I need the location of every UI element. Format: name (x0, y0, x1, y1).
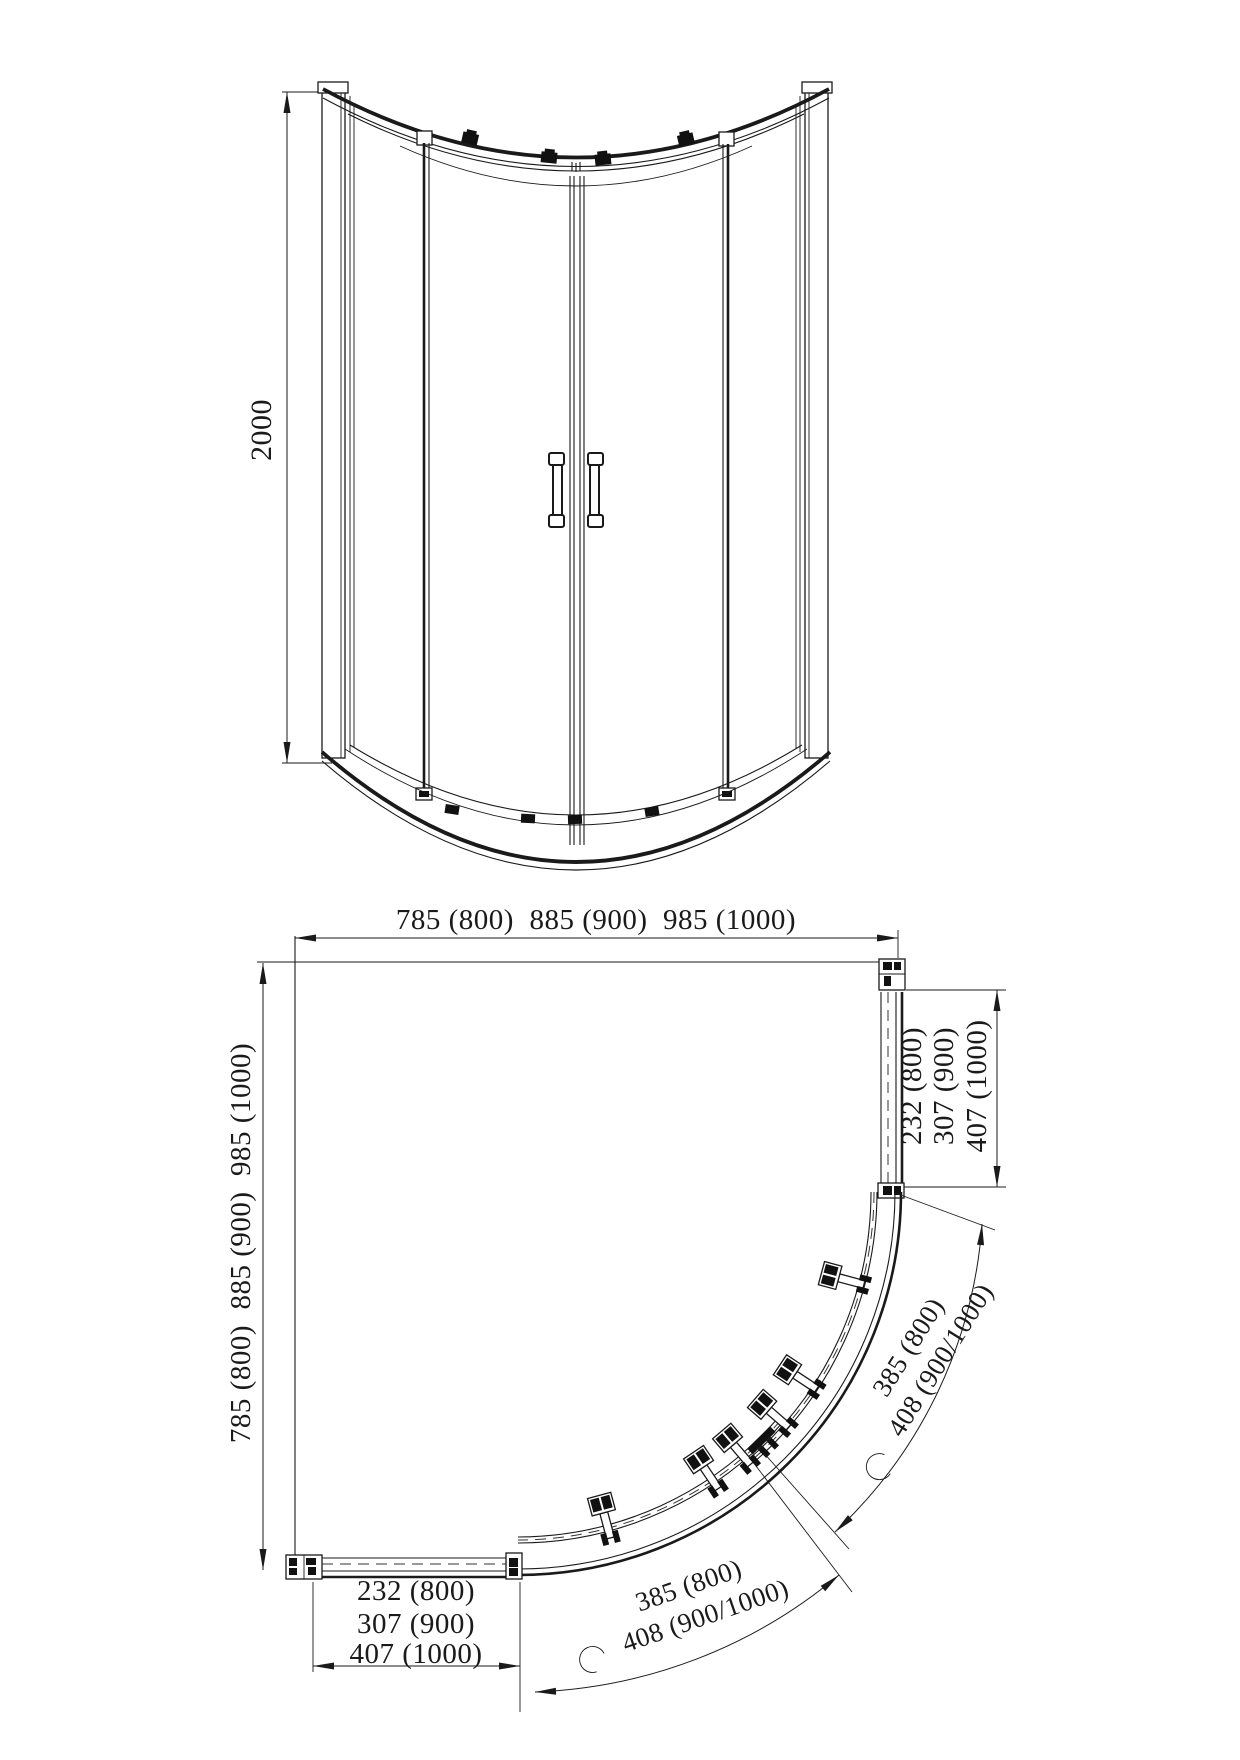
panel-dividers (416, 131, 735, 800)
svg-text:307 (900): 307 (900) (357, 1608, 475, 1640)
right-wall-post (805, 90, 828, 758)
arc-length-symbol (861, 1449, 897, 1485)
curved-track-and-doors (518, 1192, 901, 1575)
right-arc-dimension: 385 (800) 408 (900/1000) (763, 1194, 1002, 1549)
left-wall-post (322, 90, 345, 758)
right-return-dimension: 232 (800) 307 (900) 407 (1000) (896, 990, 1006, 1187)
bottom-sill-rail (322, 745, 830, 870)
svg-text:232 (800): 232 (800) (896, 1027, 928, 1145)
top-right-wall-profile (879, 959, 905, 990)
width-dimension-label: 785 (800) 885 (900) 985 (1000) (396, 904, 796, 936)
svg-text:232 (800): 232 (800) (357, 1575, 475, 1607)
height-dimension: 2000 (245, 92, 332, 763)
depth-dimension: 785 (800) 885 (900) 985 (1000) (225, 963, 263, 1570)
bottom-arc-dimension: 385 (800) 408 (900/1000) (535, 1466, 852, 1692)
bottom-return-dimension: 232 (800) 307 (900) 407 (1000) (313, 1575, 520, 1712)
left-door-handle (549, 453, 564, 527)
bottom-junction-bracket (506, 1553, 522, 1579)
arc-length-symbol (576, 1643, 609, 1676)
bottom-left-wall-profile (286, 1555, 322, 1579)
depth-dimension-label: 785 (800) 885 (900) 985 (1000) (225, 1043, 257, 1443)
height-dimension-label: 2000 (245, 399, 278, 461)
svg-text:407 (1000): 407 (1000) (961, 1019, 993, 1152)
drawing-svg: 2000 (0, 0, 1240, 1755)
svg-text:407 (1000): 407 (1000) (349, 1638, 482, 1670)
svg-text:307 (900): 307 (900) (928, 1027, 960, 1145)
left-post-cap (318, 82, 348, 93)
front-elevation-view: 2000 (245, 82, 832, 870)
right-door-handle (588, 453, 603, 527)
plan-view: 785 (800) 885 (900) 985 (1000) 785 (800)… (225, 904, 1006, 1712)
shower-enclosure-technical-drawing: 2000 (0, 0, 1240, 1755)
door-meeting-stiles (570, 176, 584, 845)
width-dimension: 785 (800) 885 (900) 985 (1000) (295, 904, 898, 958)
